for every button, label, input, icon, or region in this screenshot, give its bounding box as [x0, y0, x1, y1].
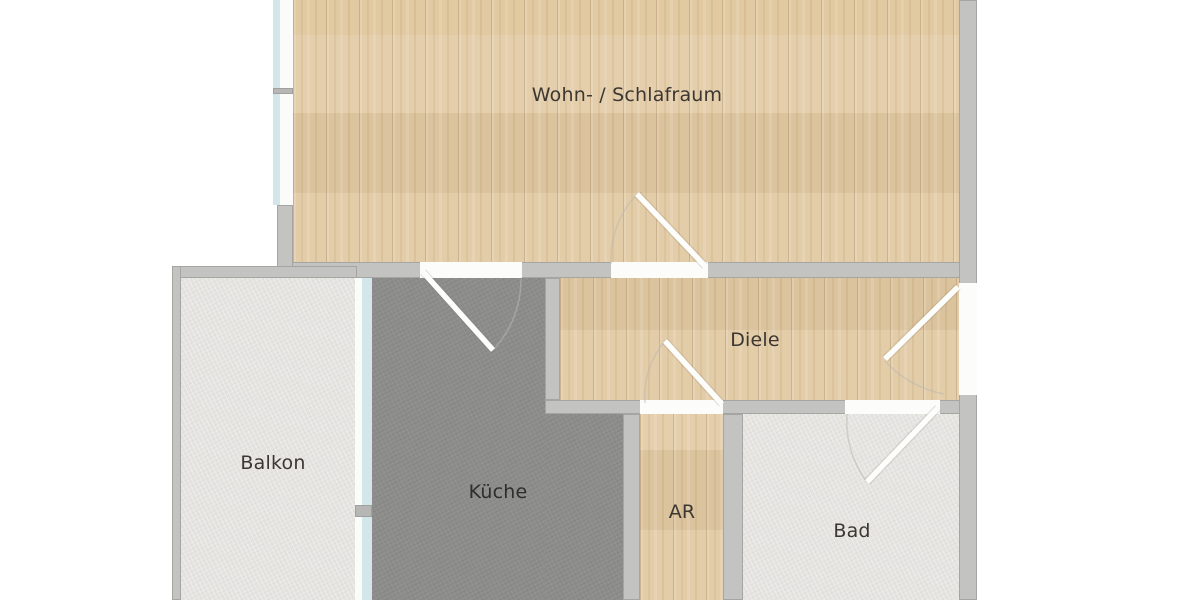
- wohn-door-opening: [611, 262, 708, 278]
- balkon-window-glass: [362, 278, 372, 600]
- room-balkon-floor: [181, 278, 357, 600]
- wohn-window-glass: [273, 0, 280, 205]
- room-kueche-floor-lower: [545, 414, 623, 600]
- wall-ar-left: [623, 414, 640, 600]
- wall-kueche-diele: [545, 278, 560, 400]
- kueche-door-opening: [420, 262, 522, 278]
- label-diele: Diele: [730, 329, 780, 351]
- floorplan-canvas: Wohn- / Schlafraum Diele Balkon Küche AR…: [0, 0, 1200, 600]
- wall-balkon-top: [172, 266, 357, 278]
- wohn-window-mullion: [273, 88, 293, 94]
- ar-door-opening: [640, 400, 723, 414]
- label-kueche: Küche: [469, 481, 528, 503]
- room-wohn-schlafraum-floor: [293, 0, 959, 263]
- label-bad: Bad: [833, 520, 870, 542]
- wall-ar-right: [723, 414, 743, 600]
- entrance-door-opening: [959, 283, 977, 395]
- label-wohn-schlafraum: Wohn- / Schlafraum: [532, 84, 722, 106]
- wall-wohn-left: [277, 205, 293, 267]
- room-kueche-floor: [372, 278, 545, 600]
- bad-door-opening: [845, 400, 940, 414]
- balkon-window-frame: [355, 278, 362, 600]
- room-bad-floor: [743, 414, 960, 600]
- label-balkon: Balkon: [240, 452, 305, 474]
- wall-balkon-left: [172, 266, 181, 600]
- wohn-window-frame: [280, 0, 293, 205]
- label-ar: AR: [669, 501, 696, 523]
- balkon-window-mullion: [355, 505, 372, 517]
